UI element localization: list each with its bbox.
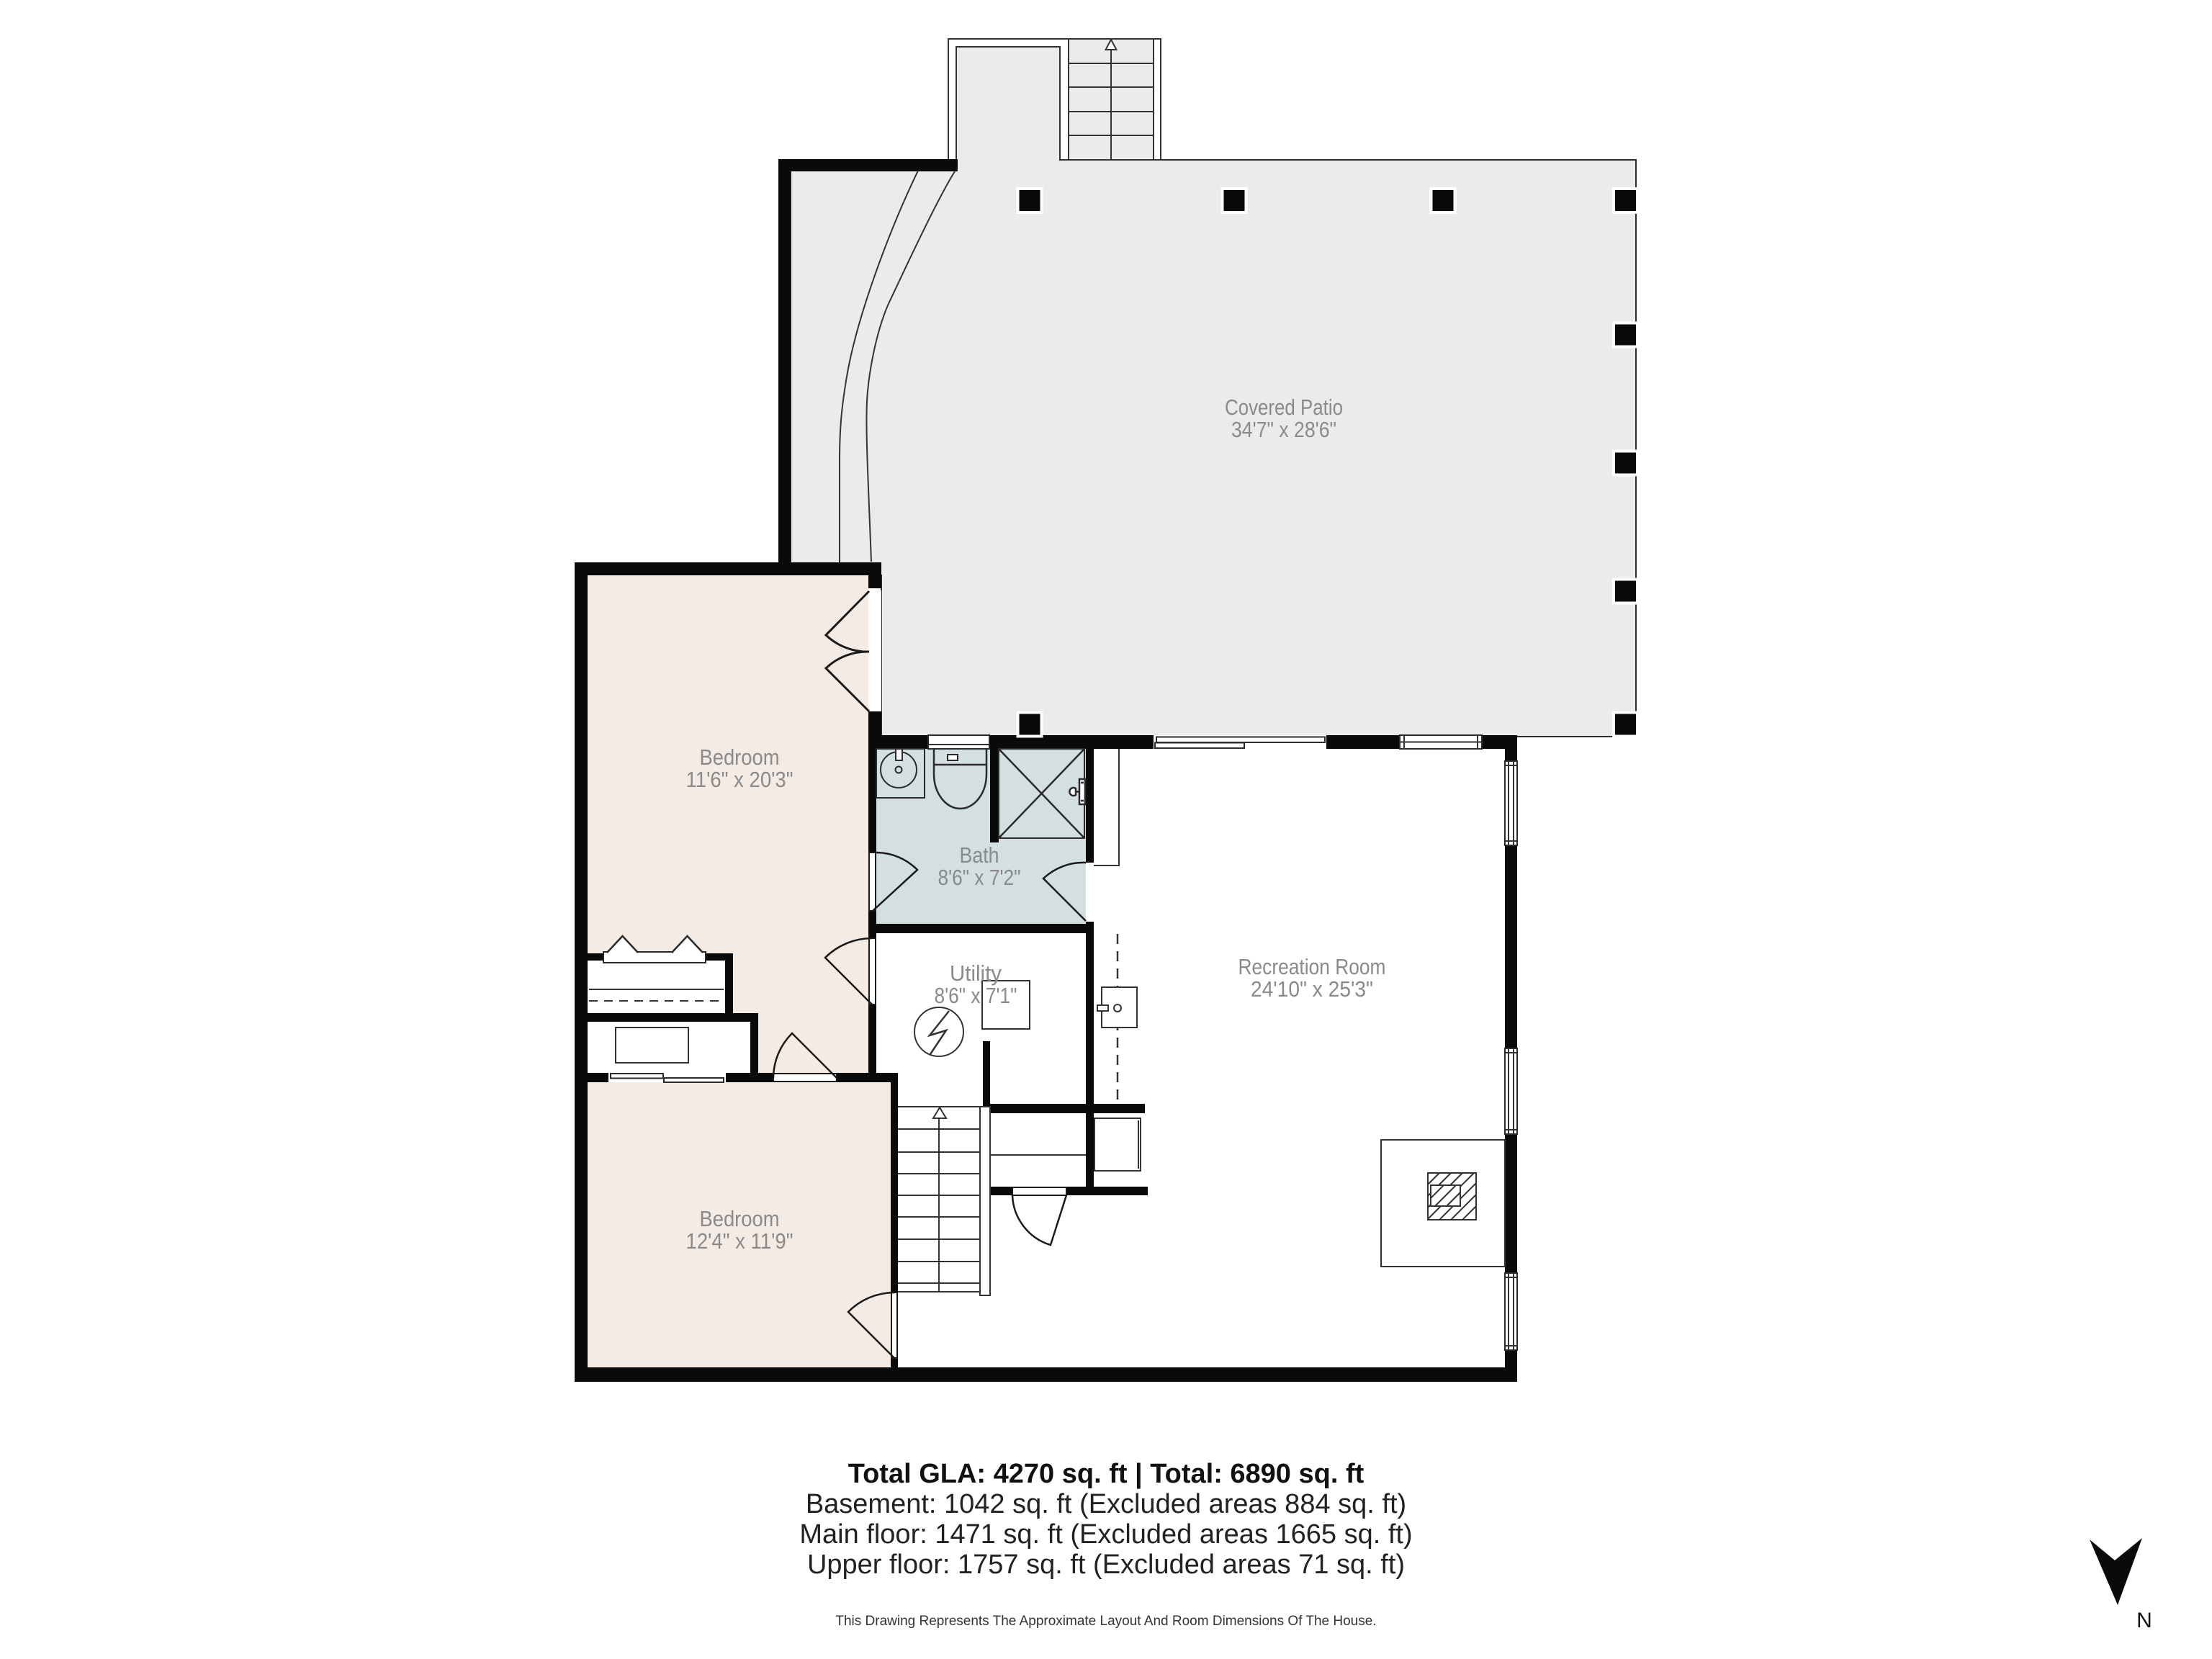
svg-text:8'6" x 7'1": 8'6" x 7'1" <box>935 984 1017 1008</box>
svg-text:Bath: Bath <box>960 843 999 868</box>
svg-text:Upper floor: 1757 sq. ft (Excl: Upper floor: 1757 sq. ft (Excluded areas… <box>807 1550 1405 1580</box>
svg-text:This Drawing Represents The Ap: This Drawing Represents The Approximate … <box>835 1614 1376 1629</box>
svg-text:Covered Patio: Covered Patio <box>1225 395 1343 420</box>
svg-text:8'6" x 7'2": 8'6" x 7'2" <box>938 866 1021 890</box>
svg-text:Bedroom: Bedroom <box>700 745 780 770</box>
svg-text:24'10" x 25'3": 24'10" x 25'3" <box>1251 977 1373 1002</box>
svg-text:Utility: Utility <box>950 961 1002 986</box>
svg-text:Basement: 1042 sq. ft (Exclude: Basement: 1042 sq. ft (Excluded areas 88… <box>806 1489 1406 1519</box>
svg-text:11'6" x 20'3": 11'6" x 20'3" <box>686 768 793 792</box>
svg-text:Bedroom: Bedroom <box>700 1207 780 1231</box>
svg-text:Total GLA: 4270 sq. ft | Total: Total GLA: 4270 sq. ft | Total: 6890 sq.… <box>848 1459 1364 1489</box>
svg-text:Recreation Room: Recreation Room <box>1238 955 1386 979</box>
svg-text:Main floor: 1471 sq. ft (Exclu: Main floor: 1471 sq. ft (Excluded areas … <box>799 1519 1412 1550</box>
svg-text:34'7" x 28'6": 34'7" x 28'6" <box>1231 418 1336 442</box>
svg-text:N: N <box>2136 1609 2152 1632</box>
svg-text:12'4" x 11'9": 12'4" x 11'9" <box>686 1229 793 1254</box>
